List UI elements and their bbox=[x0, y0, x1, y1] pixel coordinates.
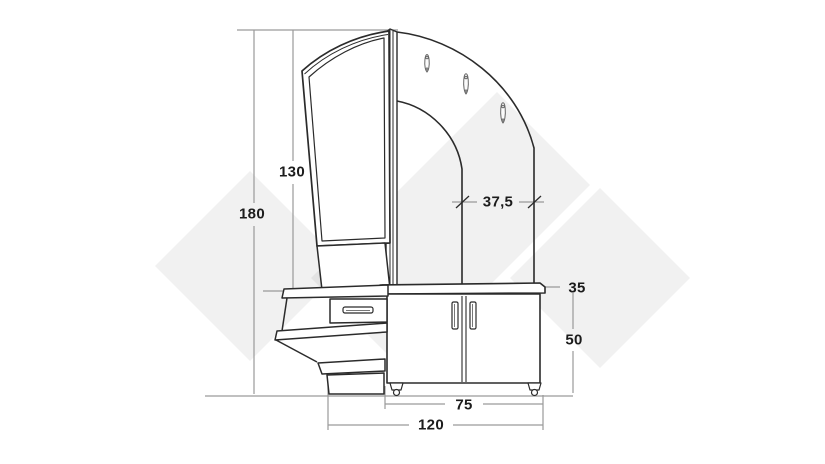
coat-hook-icon bbox=[501, 103, 506, 123]
cabinet-top-board bbox=[380, 283, 545, 294]
base-cabinet bbox=[380, 283, 545, 396]
console-step-board bbox=[318, 359, 385, 374]
console-side-edge-lower bbox=[276, 340, 317, 362]
coat-hook-icon bbox=[425, 55, 430, 73]
cabinet-body bbox=[387, 294, 540, 383]
dim-label-mirror-height: 130 bbox=[279, 165, 305, 180]
console-base bbox=[327, 373, 384, 394]
furniture-diagram bbox=[0, 0, 825, 464]
cabinet-foot bbox=[528, 383, 541, 396]
dim-label-cabinet-depth: 35 bbox=[568, 281, 585, 296]
mirror-outer-frame bbox=[302, 31, 390, 246]
cabinet-foot bbox=[390, 383, 403, 396]
dim-label-total-height: 180 bbox=[239, 207, 265, 222]
dim-label-total-width: 120 bbox=[418, 418, 444, 433]
drawer-handle bbox=[343, 307, 373, 313]
cabinet-door-handle bbox=[470, 302, 476, 329]
technical-drawing-canvas: 180 130 37,5 35 50 75 120 bbox=[0, 0, 825, 464]
mirror-lower-panel bbox=[317, 243, 390, 290]
cabinet-door-handle bbox=[452, 302, 458, 329]
coat-hook-icon bbox=[464, 74, 469, 94]
dim-label-cabinet-width: 75 bbox=[455, 398, 472, 413]
dim-label-hook-panel-width: 37,5 bbox=[483, 195, 513, 210]
console-shelf bbox=[275, 323, 387, 340]
dim-label-cabinet-height: 50 bbox=[565, 333, 582, 348]
